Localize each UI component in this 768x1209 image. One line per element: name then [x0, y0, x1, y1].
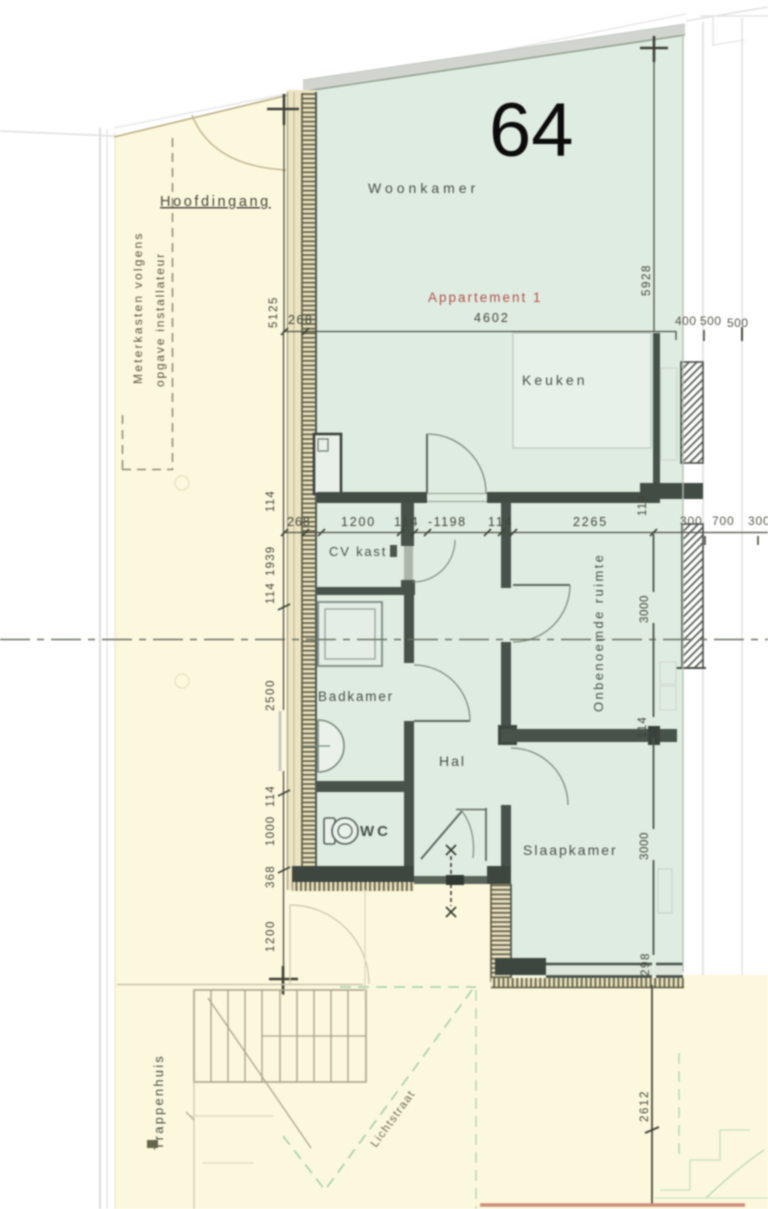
- svg-text:Badkamer: Badkamer: [318, 689, 394, 704]
- svg-text:114: 114: [637, 716, 649, 738]
- svg-text:114: 114: [265, 582, 277, 604]
- svg-text:2265: 2265: [573, 515, 608, 529]
- svg-text:1200: 1200: [341, 515, 376, 529]
- svg-text:500: 500: [700, 314, 722, 328]
- svg-text:1939: 1939: [265, 546, 277, 576]
- svg-text:1000: 1000: [265, 816, 277, 846]
- svg-text:3000: 3000: [639, 832, 651, 860]
- svg-text:114: 114: [394, 515, 419, 529]
- svg-text:Trappenhuis: Trappenhuis: [151, 1054, 166, 1150]
- svg-text:5928: 5928: [641, 264, 653, 296]
- svg-text:Keuken: Keuken: [522, 372, 587, 388]
- svg-text:Meterkasten volgens: Meterkasten volgens: [131, 231, 145, 384]
- svg-text:1200: 1200: [265, 920, 277, 952]
- svg-text:300: 300: [680, 514, 702, 528]
- svg-text:2612: 2612: [639, 1090, 651, 1122]
- svg-text:64: 64: [489, 88, 574, 173]
- svg-text:300: 300: [748, 514, 768, 528]
- svg-text:268: 268: [288, 313, 313, 327]
- svg-text:2500: 2500: [265, 679, 277, 711]
- svg-text:Slaapkamer: Slaapkamer: [523, 842, 618, 858]
- svg-text:500: 500: [727, 316, 749, 330]
- svg-text:298: 298: [640, 952, 652, 976]
- svg-text:Hoofdingang: Hoofdingang: [160, 194, 271, 210]
- svg-text:CV kast: CV kast: [329, 544, 387, 559]
- svg-text:WC: WC: [360, 823, 391, 840]
- svg-text:4602: 4602: [474, 311, 510, 325]
- svg-text:Onbenoemde ruimte: Onbenoemde ruimte: [591, 553, 606, 712]
- svg-text:opgave installateur: opgave installateur: [153, 252, 167, 387]
- svg-text:700: 700: [712, 514, 734, 528]
- svg-text:Woonkamer: Woonkamer: [368, 180, 479, 196]
- svg-text:114: 114: [488, 515, 513, 529]
- svg-text:114: 114: [265, 490, 277, 512]
- svg-text:5125: 5125: [268, 296, 280, 328]
- svg-text:114: 114: [637, 494, 649, 516]
- svg-text:Hal: Hal: [439, 753, 466, 769]
- svg-text:114: 114: [265, 785, 277, 807]
- svg-text:400: 400: [675, 314, 697, 328]
- svg-text:268: 268: [287, 515, 311, 529]
- svg-text:3000: 3000: [639, 595, 651, 623]
- svg-text:Appartement 1: Appartement 1: [428, 290, 543, 305]
- svg-text:368: 368: [265, 865, 277, 888]
- svg-text:-1198: -1198: [428, 515, 467, 529]
